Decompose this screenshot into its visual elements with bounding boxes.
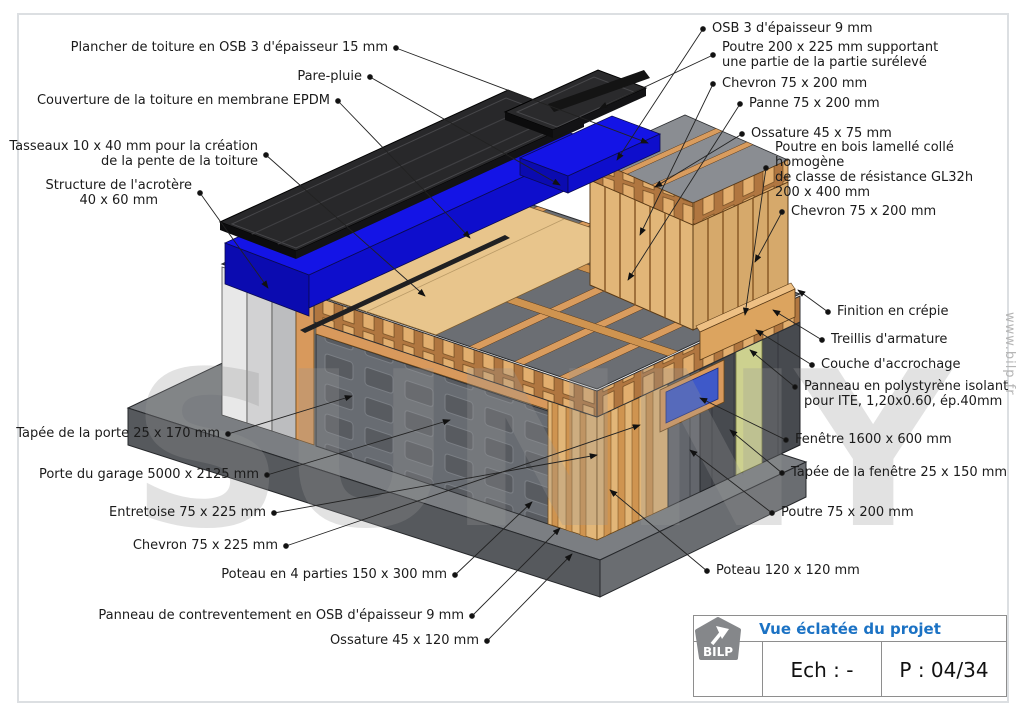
callout-poutre-75x200: Poutre 75 x 200 mm	[781, 505, 914, 520]
callout-poutre-gl32h: Poutre en bois lamellé collé homogène de…	[775, 140, 1024, 200]
callout-poteau-120: Poteau 120 x 120 mm	[716, 563, 860, 578]
bilp-logo-icon: BILP	[694, 616, 742, 662]
page-number: P : 04/34	[899, 658, 988, 682]
title-block: Vue éclatée du projet BILP Ech : - P : 0…	[693, 615, 1007, 697]
callout-polystyrene: Panneau en polystyrène isolant pour ITE,…	[804, 379, 1008, 409]
callout-finition-crepie: Finition en crépie	[837, 304, 948, 319]
callout-tasseaux: Tasseaux 10 x 40 mm pour la création de …	[9, 139, 258, 169]
callout-tapee-porte: Tapée de la porte 25 x 170 mm	[16, 426, 220, 441]
callout-pare-pluie: Pare-pluie	[297, 69, 362, 84]
callout-couverture-epdm: Couverture de la toiture en membrane EPD…	[37, 93, 330, 108]
callout-panne: Panne 75 x 200 mm	[749, 96, 880, 111]
callout-entretoise: Entretoise 75 x 225 mm	[109, 505, 266, 520]
callout-tapee-fenetre: Tapée de la fenêtre 25 x 150 mm	[791, 465, 1007, 480]
callout-chevron-200-a: Chevron 75 x 200 mm	[722, 76, 867, 91]
callout-porte-garage: Porte du garage 5000 x 2125 mm	[39, 467, 259, 482]
callout-chevron-225: Chevron 75 x 225 mm	[133, 538, 278, 553]
drawing-title: Vue éclatée du projet	[759, 620, 941, 638]
callout-poteau-4-parties: Poteau en 4 parties 150 x 300 mm	[221, 567, 447, 582]
callout-contreventement: Panneau de contreventement en OSB d'épai…	[98, 608, 464, 623]
callout-ossature-120: Ossature 45 x 120 mm	[330, 633, 479, 648]
website-watermark: www.bilp.fr	[1002, 312, 1017, 396]
plan-page: SUNNY	[0, 0, 1024, 724]
callout-osb-9: OSB 3 d'épaisseur 9 mm	[712, 21, 873, 36]
svg-text:BILP: BILP	[703, 645, 733, 659]
callout-couche-accroche: Couche d'accrochage	[821, 357, 961, 372]
scale-value: Ech : -	[791, 658, 854, 682]
callout-ossature-45x75: Ossature 45 x 75 mm	[751, 126, 892, 141]
bilp-logo: BILP	[694, 642, 762, 697]
callout-poutre-200x225: Poutre 200 x 225 mm supportant une parti…	[722, 40, 938, 70]
callout-treillis: Treillis d'armature	[831, 332, 947, 347]
callout-plancher-osb: Plancher de toiture en OSB 3 d'épaisseur…	[71, 40, 388, 55]
callout-chevron-200-b: Chevron 75 x 200 mm	[791, 204, 936, 219]
callout-acrotere: Structure de l'acrotère 40 x 60 mm	[46, 178, 192, 208]
callout-fenetre: Fenêtre 1600 x 600 mm	[795, 432, 952, 447]
